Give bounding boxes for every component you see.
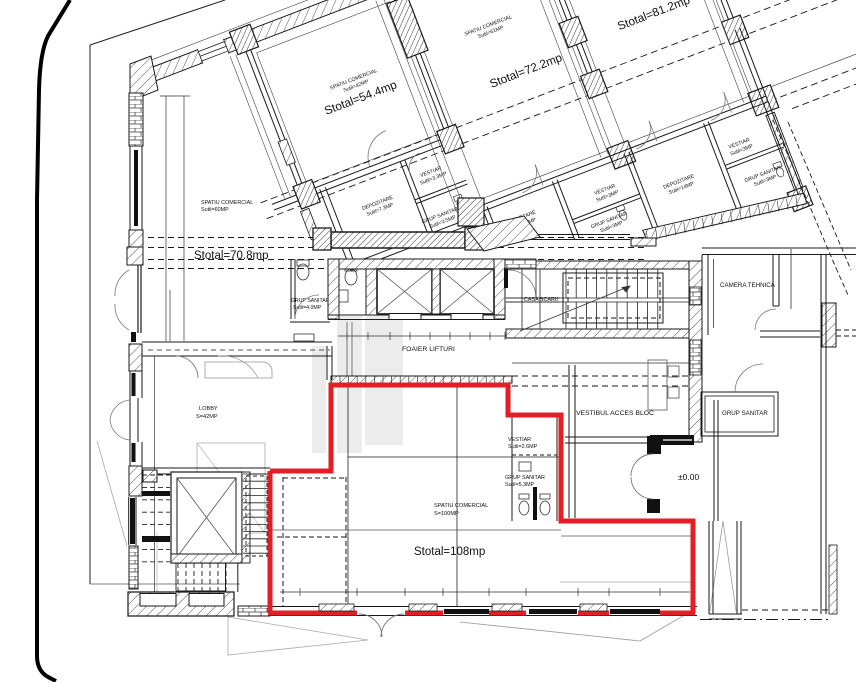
svg-text:Stotal=70.8mp: Stotal=70.8mp xyxy=(194,250,268,262)
svg-text:CAMERA TEHNICA: CAMERA TEHNICA xyxy=(720,282,776,289)
svg-text:GRUP SANITAR: GRUP SANITAR xyxy=(505,475,545,481)
svg-text:CASA SCARII: CASA SCARII xyxy=(524,297,558,303)
svg-text:FOAIER LIFTURI: FOAIER LIFTURI xyxy=(402,346,455,353)
svg-text:S=100MP: S=100MP xyxy=(434,511,459,517)
svg-text:Sutil=60MP: Sutil=60MP xyxy=(201,207,229,213)
svg-text:VESTIBUL ACCES BLOC: VESTIBUL ACCES BLOC xyxy=(576,410,654,417)
svg-text:LOBBY: LOBBY xyxy=(199,406,218,412)
svg-text:SPATIU COMERCIAL: SPATIU COMERCIAL xyxy=(434,503,488,509)
svg-text:S=42MP: S=42MP xyxy=(196,414,218,420)
svg-text:±0.00: ±0.00 xyxy=(678,472,699,482)
svg-text:GRUP SANITAR: GRUP SANITAR xyxy=(722,410,768,417)
svg-text:VESTIAR: VESTIAR xyxy=(508,437,531,443)
svg-text:SPATIU COMERCIAL: SPATIU COMERCIAL xyxy=(201,200,253,206)
svg-text:Sutil=5.3MP: Sutil=5.3MP xyxy=(505,482,535,488)
svg-text:Stotal=108mp: Stotal=108mp xyxy=(414,546,485,558)
svg-text:GRUP SANITAR: GRUP SANITAR xyxy=(291,298,330,304)
